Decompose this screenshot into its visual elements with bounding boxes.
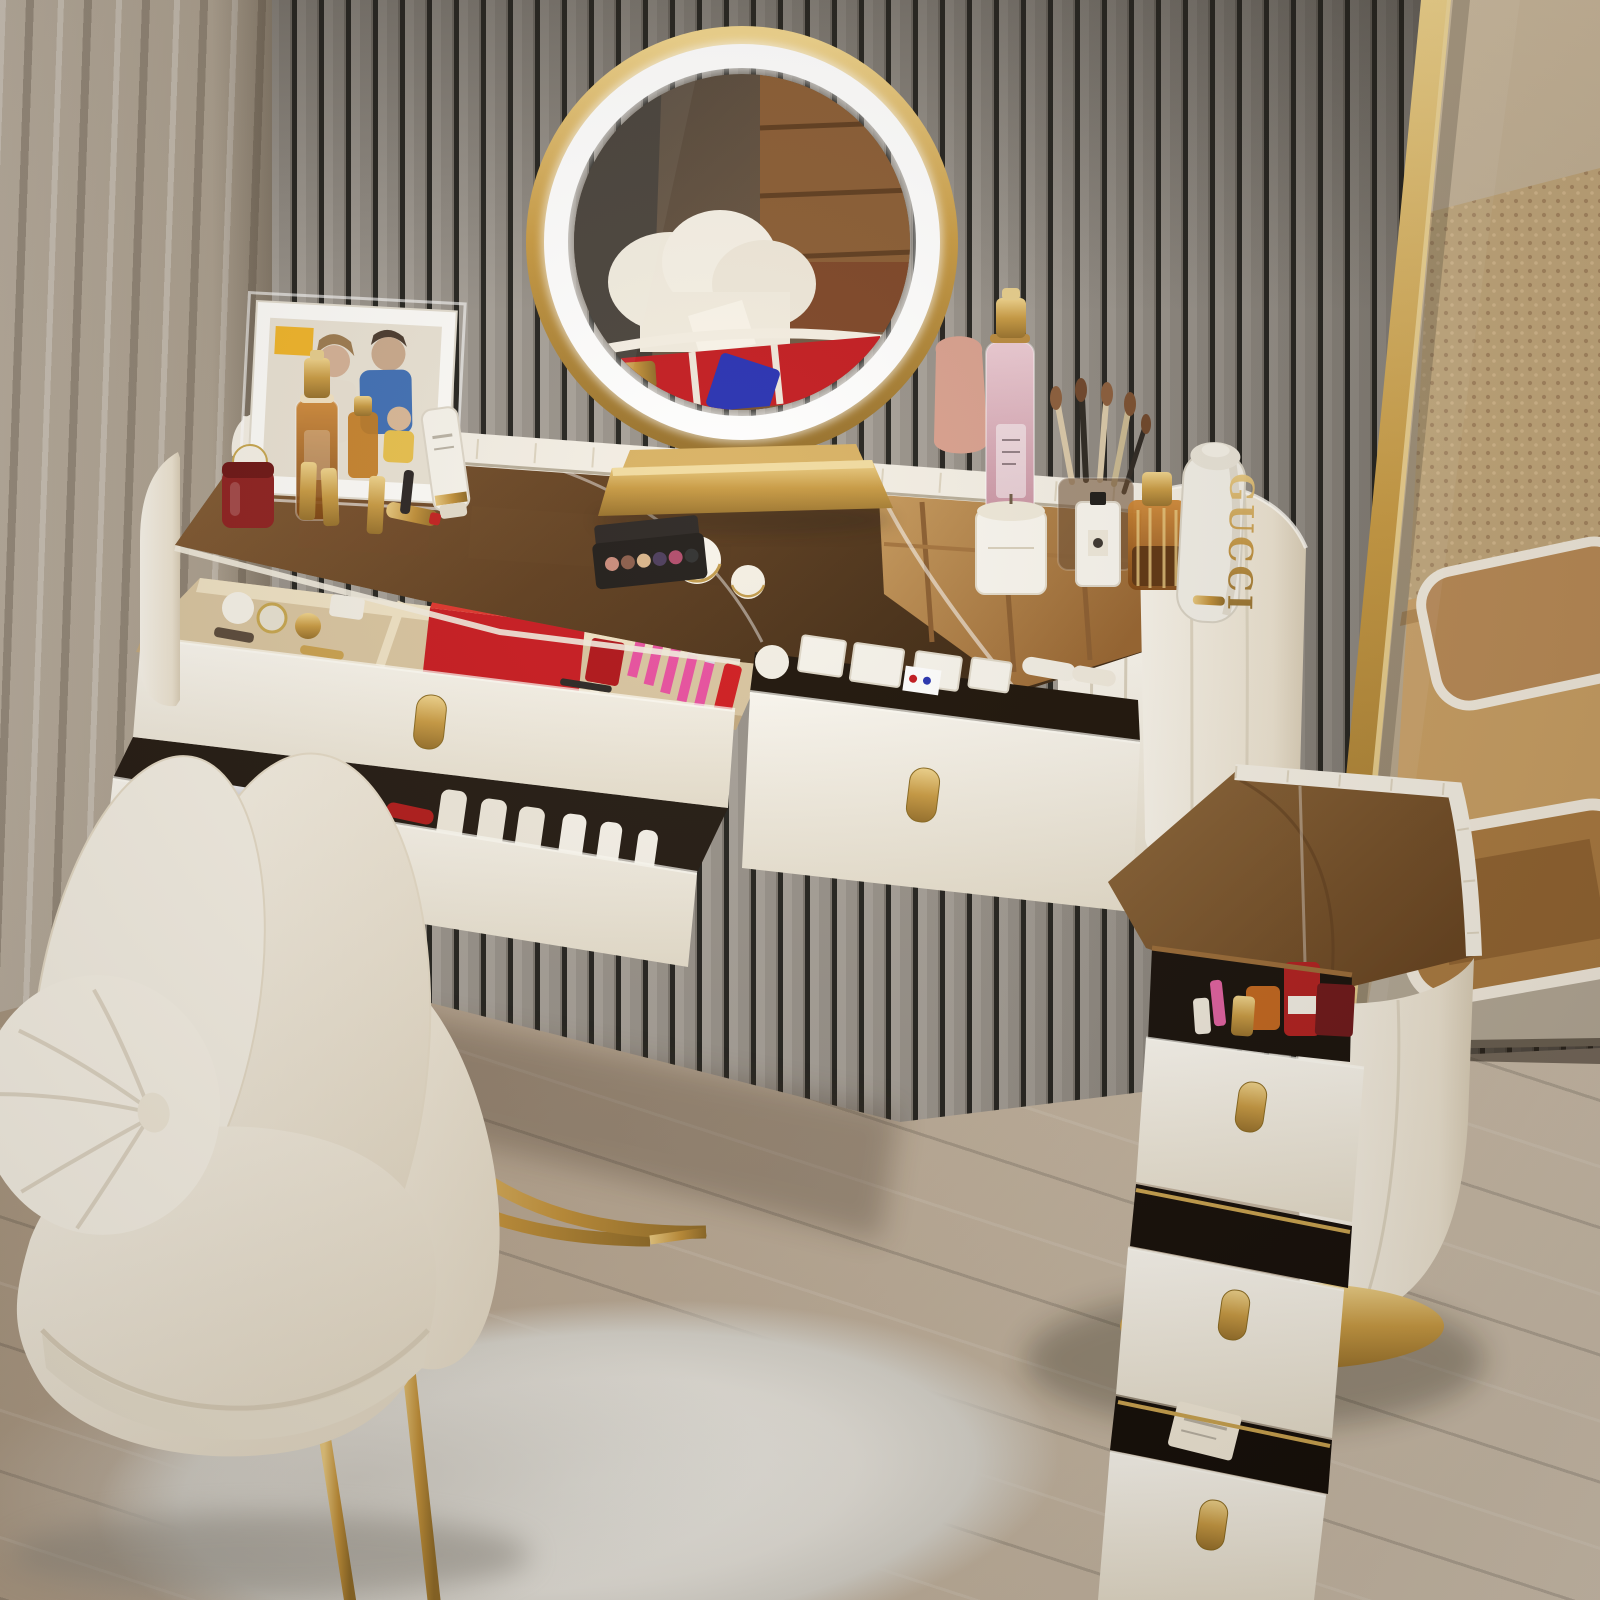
mirror-base [598,444,893,516]
drawer-handle [412,694,447,751]
table-left-panel [140,452,180,706]
furniture-scene: GUCCI [0,0,1600,1600]
side-cabinet [1098,772,1474,1600]
red-jar [222,462,274,528]
candle [976,494,1046,594]
chair-shadow [10,1513,530,1597]
rose-gold-vase [934,336,988,453]
middle-drawer [742,635,1140,912]
gucci-bottle: GUCCI [1176,441,1268,625]
square-diffuser-bottle [1076,492,1120,586]
vanity-room-photo: GUCCI [0,0,1600,1600]
gucci-bottle-label: GUCCI [1220,473,1261,614]
eyeshadow-palette [590,514,708,589]
